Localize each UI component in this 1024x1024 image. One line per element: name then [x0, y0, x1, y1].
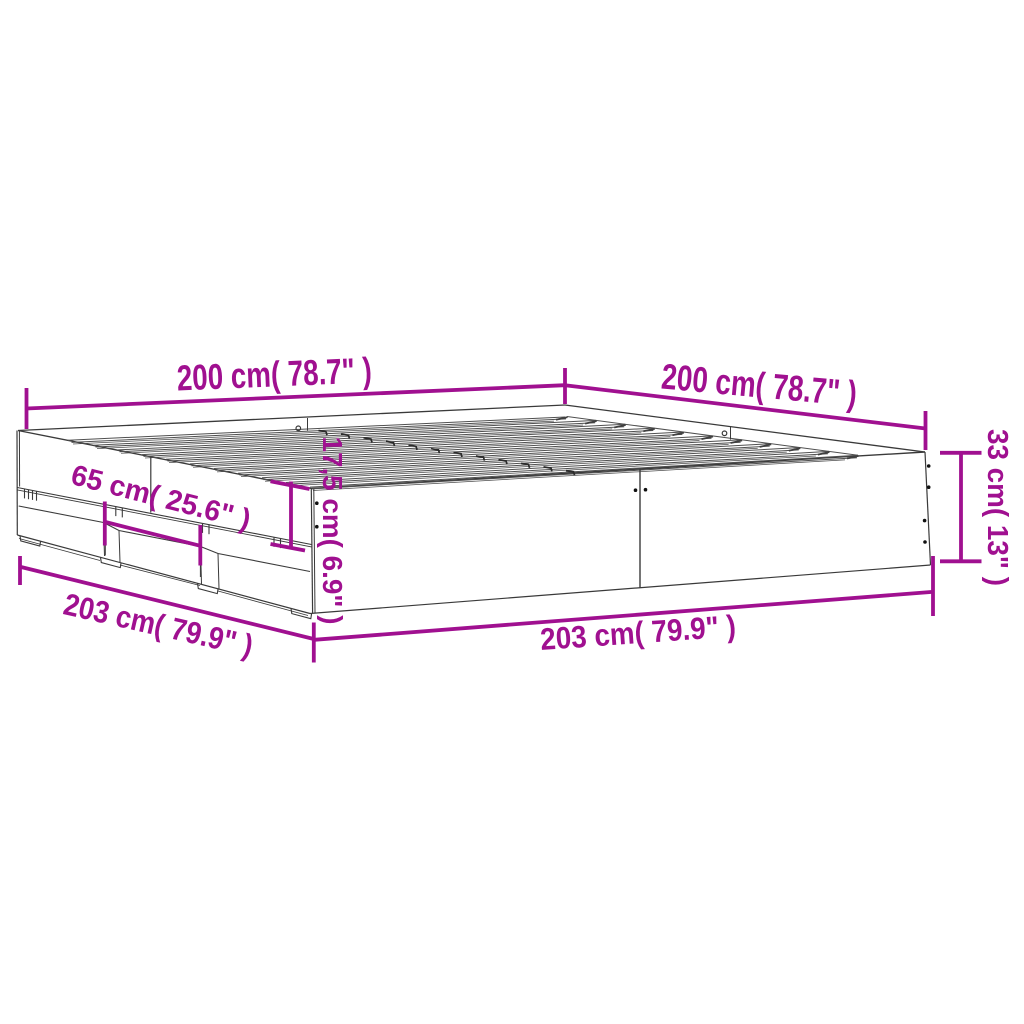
- svg-text:203 cm( 79.9" ): 203 cm( 79.9" ): [60, 586, 256, 663]
- svg-text:65 cm( 25.6" ): 65 cm( 25.6" ): [68, 459, 254, 536]
- svg-text:17,5 cm( 6.9" ): 17,5 cm( 6.9" ): [317, 437, 348, 625]
- svg-text:33 cm( 13" ): 33 cm( 13" ): [981, 429, 1013, 586]
- svg-text:200 cm( 78.7" ): 200 cm( 78.7" ): [176, 349, 373, 398]
- svg-text:200 cm( 78.7" ): 200 cm( 78.7" ): [660, 356, 859, 415]
- svg-text:203 cm( 79.9" ): 203 cm( 79.9" ): [539, 608, 737, 657]
